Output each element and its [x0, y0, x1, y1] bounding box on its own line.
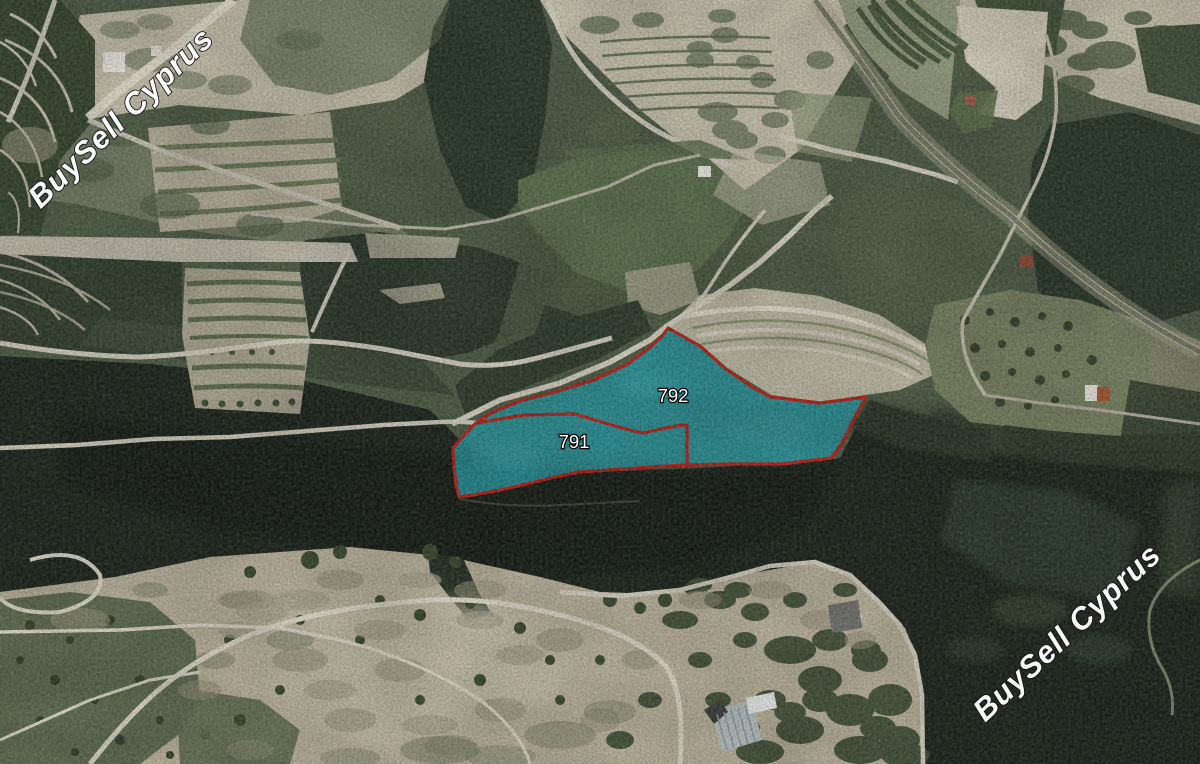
svg-text:792: 792 — [658, 385, 689, 406]
svg-text:791: 791 — [559, 431, 590, 452]
